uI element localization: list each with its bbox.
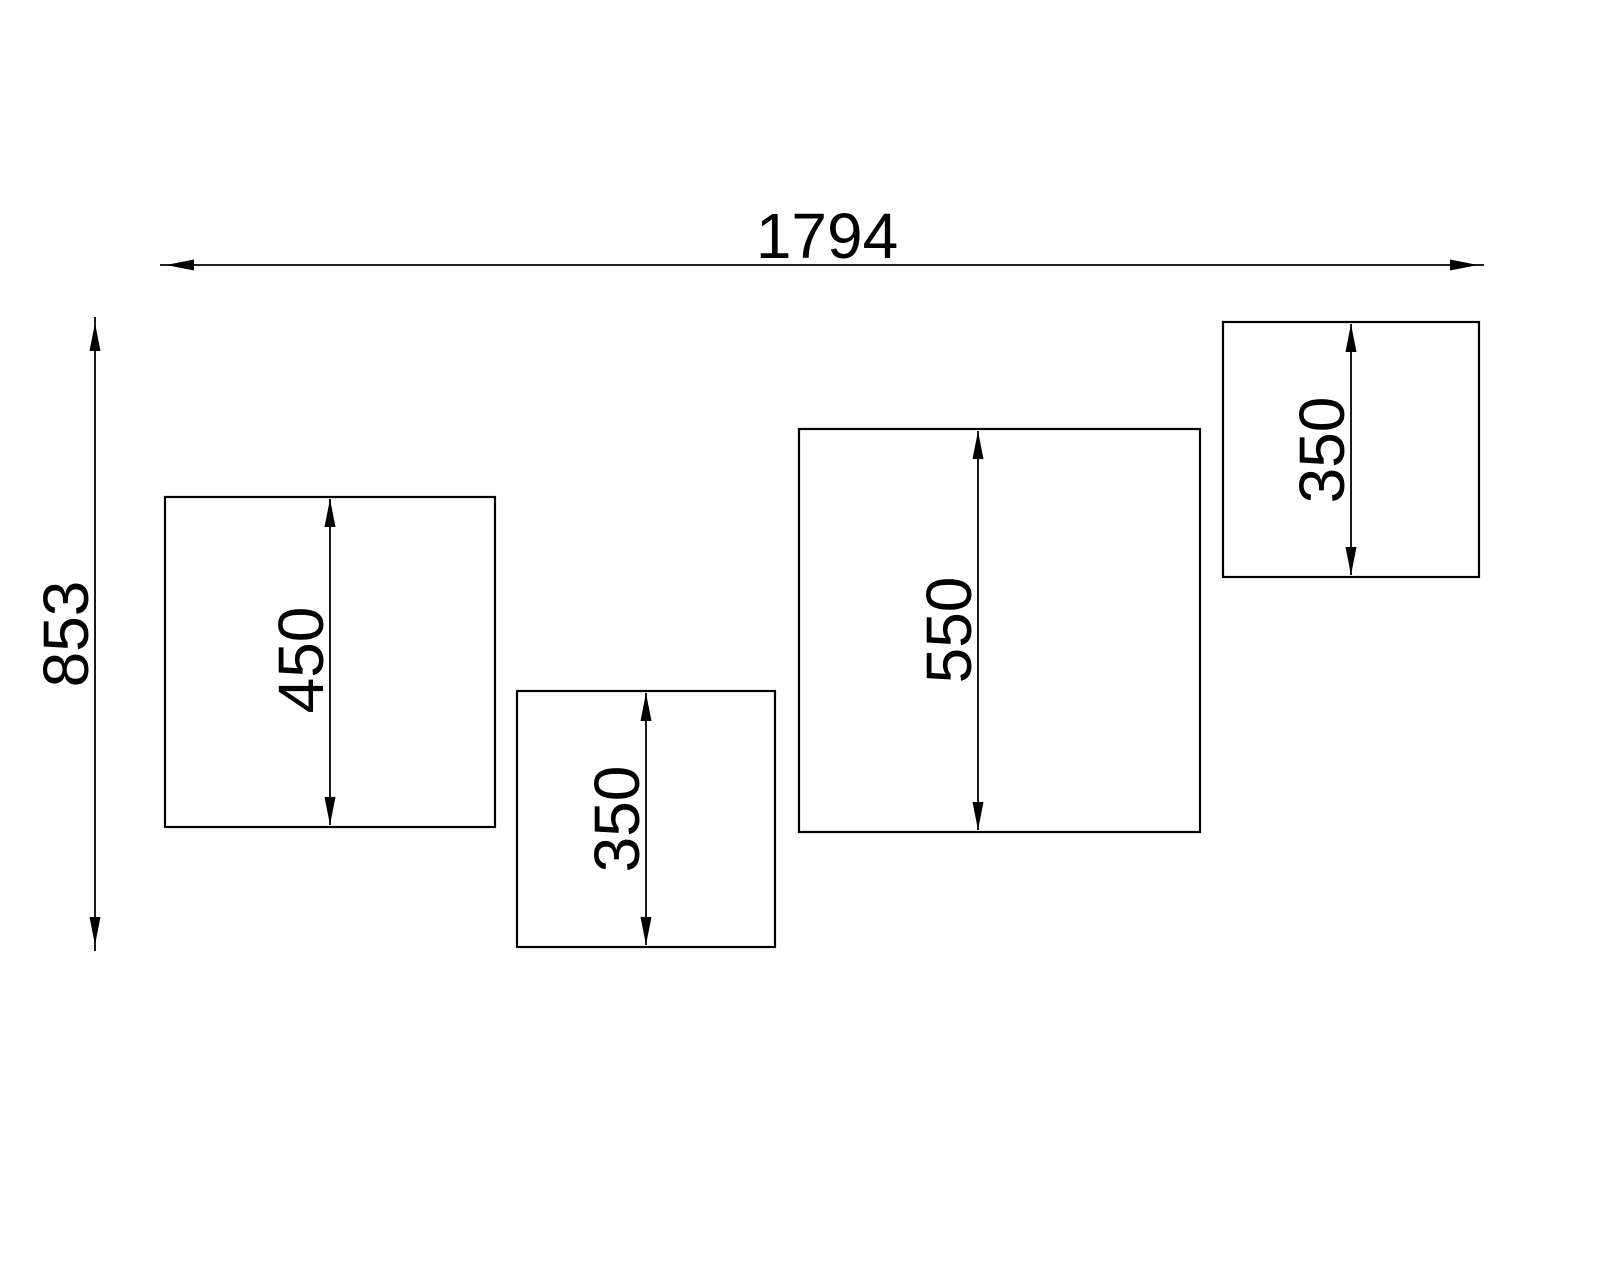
arrow-right-icon — [1450, 260, 1478, 271]
arrow-down-icon — [90, 917, 101, 945]
overall-height-dimension: 853 — [30, 317, 102, 951]
arrow-up-icon — [973, 431, 984, 459]
panel-1: 450 — [165, 497, 495, 827]
arrow-up-icon — [90, 323, 101, 351]
panel-4: 350 — [1223, 322, 1479, 577]
overall-width-dimension: 1794 — [160, 200, 1484, 272]
arrow-down-icon — [641, 917, 652, 945]
panel-3-height-label: 550 — [913, 577, 985, 684]
overall-width-label: 1794 — [756, 200, 898, 272]
arrow-down-icon — [973, 802, 984, 830]
panel-4-height-label: 350 — [1286, 397, 1358, 504]
arrow-left-icon — [166, 260, 194, 271]
arrow-up-icon — [325, 499, 336, 527]
panel-2: 350 — [517, 691, 775, 947]
panel-3: 550 — [799, 429, 1200, 832]
cad-drawing-canvas: 1794 853 450 350 — [0, 0, 1600, 1280]
panel-1-height-label: 450 — [265, 607, 337, 714]
panel-2-height-label: 350 — [581, 766, 653, 873]
arrow-up-icon — [1346, 324, 1357, 352]
arrow-down-icon — [1346, 547, 1357, 575]
panel-3-outline — [799, 429, 1200, 832]
dimension-drawing: 1794 853 450 350 — [0, 0, 1600, 1280]
arrow-down-icon — [325, 797, 336, 825]
overall-height-label: 853 — [30, 581, 102, 688]
arrow-up-icon — [641, 693, 652, 721]
